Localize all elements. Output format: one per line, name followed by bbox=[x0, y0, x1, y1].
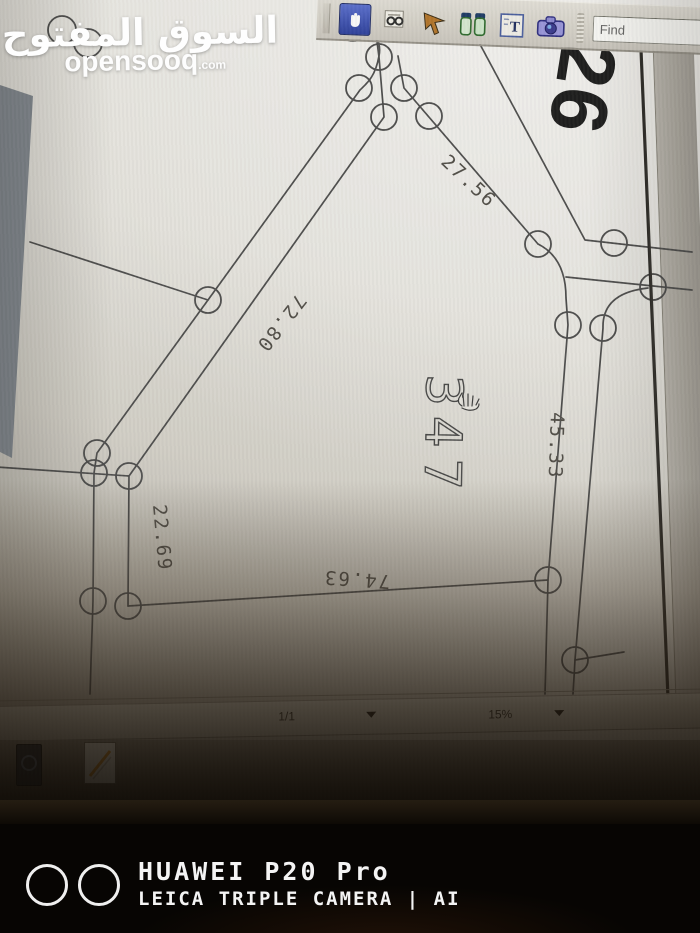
text-tool-button[interactable]: T bbox=[496, 10, 527, 41]
photo-of-screen: 26 347 27.56 72.80 45.33 22.69 74.63 bbox=[0, 0, 700, 933]
survey-point bbox=[346, 75, 372, 101]
measurement-south: 74.63 bbox=[322, 566, 391, 593]
measurement-northeast: 27.56 bbox=[437, 151, 501, 213]
survey-point bbox=[74, 29, 102, 57]
measurement-west: 22.69 bbox=[148, 504, 176, 573]
lens-circle-icon bbox=[26, 864, 68, 906]
pencil-diagonal-icon bbox=[85, 743, 115, 783]
monitor-bezel bbox=[0, 800, 700, 824]
zoom-bottles-icon bbox=[457, 9, 488, 38]
plot-number-label: 347 bbox=[413, 374, 473, 500]
arrow-cursor-tool-button[interactable] bbox=[418, 7, 449, 38]
measurement-east: 45.33 bbox=[544, 412, 568, 480]
dual-lens-icon bbox=[26, 864, 120, 906]
select-text-tool-button[interactable] bbox=[379, 5, 410, 36]
measurement-northwest: 72.80 bbox=[252, 290, 311, 357]
pdf-viewer-window: 26 347 27.56 72.80 45.33 22.69 74.63 bbox=[0, 0, 700, 800]
photo-dark-area: HUAWEI P20 Pro LEICA TRIPLE CAMERA | AI bbox=[0, 824, 700, 933]
taskbar-icon-dark[interactable] bbox=[16, 744, 42, 786]
survey-point bbox=[48, 16, 76, 44]
device-name: HUAWEI P20 Pro bbox=[138, 858, 461, 887]
toolbar-grip-separator[interactable] bbox=[576, 13, 584, 43]
text-tool-icon: T bbox=[498, 12, 525, 39]
zoom-tools-button[interactable] bbox=[457, 8, 488, 39]
cadastral-drawing: 26 347 27.56 72.80 45.33 22.69 74.63 bbox=[0, 0, 700, 800]
lens-circle-icon bbox=[78, 864, 120, 906]
select-text-icon bbox=[381, 7, 408, 34]
huawei-camera-watermark: HUAWEI P20 Pro LEICA TRIPLE CAMERA | AI bbox=[26, 858, 461, 911]
sheet-frame-line bbox=[641, 50, 668, 698]
hand-tool-button[interactable] bbox=[338, 3, 371, 36]
find-input[interactable] bbox=[592, 16, 700, 47]
svg-text:T: T bbox=[509, 19, 520, 35]
page-dropdown-arrow-icon[interactable] bbox=[366, 712, 376, 718]
camera-icon bbox=[535, 13, 566, 40]
zoom-dropdown-arrow-icon[interactable] bbox=[554, 710, 564, 716]
huawei-text-block: HUAWEI P20 Pro LEICA TRIPLE CAMERA | AI bbox=[138, 858, 461, 911]
camera-info: LEICA TRIPLE CAMERA | AI bbox=[138, 887, 461, 912]
arrow-cursor-icon bbox=[420, 9, 447, 36]
taskbar-icon-pencil[interactable] bbox=[84, 742, 116, 784]
hand-icon bbox=[344, 8, 367, 31]
toolbar-partial-button[interactable] bbox=[322, 3, 330, 33]
zoom-level: 15% bbox=[488, 707, 512, 721]
snapshot-camera-button[interactable] bbox=[535, 11, 566, 42]
ring-glyph-icon bbox=[21, 755, 37, 771]
page-indicator: 1/1 bbox=[278, 709, 295, 723]
